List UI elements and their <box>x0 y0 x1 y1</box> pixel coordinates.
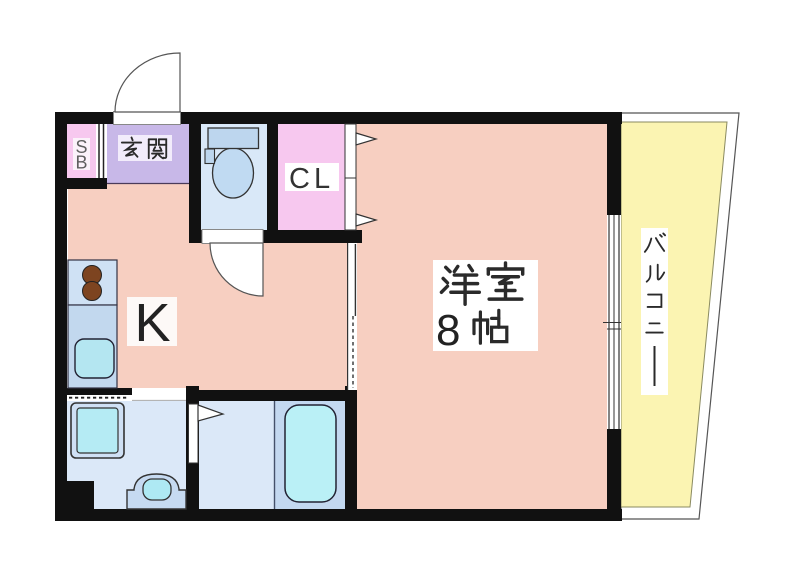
svg-text:CL: CL <box>289 163 334 195</box>
svg-text:8: 8 <box>436 306 460 355</box>
svg-text:B: B <box>75 153 87 173</box>
svg-text:K: K <box>134 293 170 353</box>
